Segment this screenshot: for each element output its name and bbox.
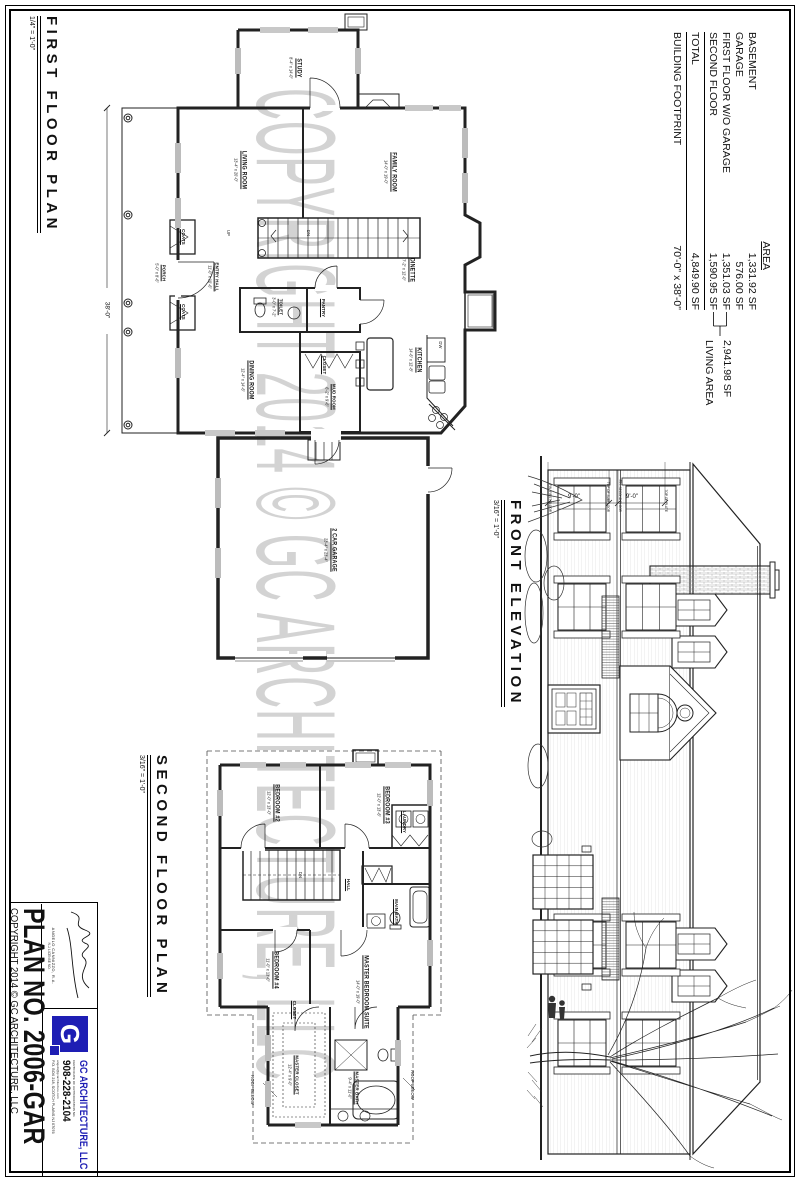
room-label-garage: 2 CAR GARAGE23'-4" x 23'-4" [324,528,337,572]
room-label-laundry: LAUNDRY [400,811,406,833]
plan-number: PLAN NO. 2006-GAR [18,908,48,1145]
second-floor-scale: 3/16" = 1'-0" [138,755,145,997]
architect-signature [61,906,97,1006]
footprint-value: 70'-0" x 38'-0" [672,212,684,310]
gc-logo-notch [49,1045,60,1056]
total-label: TOTAL [690,32,702,212]
living-area-label: LIVING AREA [700,340,718,405]
plan-dimension: 38'-0" [104,300,111,321]
living-area-value: 2,941.98 SF [718,340,736,405]
copyright-line: COPYRIGHT 2014 © GC ARCHITECTURE, LLC [8,908,19,1114]
annotation: ROOF BELOW [409,1070,415,1100]
room-dims: 11'-0" x 10'-6" [207,263,212,292]
room-name: HALL [344,879,350,891]
room-name: MUD ROOM [330,384,336,410]
room-label-bedroom-4: BEDROOM #411'-0" x 13'-0" [266,951,279,989]
room-dims: 14'-6" x 12'-8" [409,347,414,372]
level-label: TOP OF SUBFLOOR [606,482,610,512]
second-floor-title: SECOND FLOOR PLAN [147,755,170,997]
room-name: PORCH [160,263,166,282]
row-label: FIRST FLOOR W/O GARAGE [721,32,733,212]
stair-direction: DN [297,872,303,878]
label-roof-below-2: ROOF BELOW [409,1070,415,1100]
room-name: LIVING ROOM [239,151,247,189]
room-label-master-bath: MASTER BATH9'-4" x 11'-0" [347,1071,358,1104]
label-roof-below-1: ROOF BELOW [249,1075,255,1105]
room-label-coats-1: COATS [179,229,185,245]
front-elevation-title: FRONT ELEVATION [501,500,524,707]
room-name: MASTER BATH [353,1071,359,1104]
front-elevation-title-group: FRONT ELEVATION 3/16" = 1'-0" [492,500,524,707]
annotation: ROOF BELOW [249,1075,255,1105]
table-row: SECOND FLOOR 1,590.95 SF [707,32,720,310]
row-label: BASEMENT [747,32,759,212]
table-rule [686,32,687,310]
area-table-header: AREA [759,32,772,310]
stair-direction: UP [225,230,231,236]
room-label-dinette: DINETTE7'-2" x 12'-0" [402,258,415,282]
living-area-bracket [700,312,730,338]
table-footprint-row: BUILDING FOOTPRINT 70'-0" x 38'-0" [671,32,684,310]
room-label-study: STUDY8'-4" x 14'-0" [289,57,302,79]
room-name: COATS [179,229,185,245]
room-label-master-bedroom: MASTER BEDROOM SUITE14'-0" x 19'-0" [356,955,369,1029]
firm-address: P.O. BOX 218, SCOTCH PLAINS NJ 07076 [51,1060,55,1182]
room-label-toilet: TOILET3'-0" x 7'-2" [271,297,282,316]
firm-name: GC ARCHITECTURE, LLC [77,1060,89,1169]
row-label: SECOND FLOOR [708,32,720,212]
firm-block: G GC ARCHITECTURE, LLC CERTIFICATE OF AU… [42,1010,97,1176]
elevation-dim-1: 9'-0" [626,494,638,500]
label-stairs-up: UP [225,230,231,236]
room-dims: 3'-0" x 7'-2" [271,297,276,316]
room-label-mud-room: MUD ROOM6'-2" x 9'-6" [324,384,335,410]
plan-sheet: COPYRIGHT 2014 © GC ARCHITECTURE, LLC [0,0,800,1182]
architect-name: ANGELO CANNIZZO, R.A. [51,904,56,1008]
front-elevation-scale: 3/16" = 1'-0" [492,500,499,707]
room-name: ENTRY HALL [213,263,219,292]
room-name: TOILET [277,297,283,316]
room-label-porch: PORCH5'-0" x 8'-6" [154,263,165,282]
room-label-family-room: FAMILY ROOM14'-0" x 19'-0" [384,152,397,191]
row-label: GARAGE [734,32,746,212]
label-stairs-dn-2: DN [297,872,303,878]
footprint-label: BUILDING FOOTPRINT [672,32,684,212]
room-name: MAIN BATH [392,899,398,925]
room-dims: 5'-0" x 8'-6" [154,263,159,282]
room-name: 2 CAR GARAGE [329,528,337,572]
area-table: AREA BASEMENT 1,331.92 SF GARAGE 576.00 … [671,32,772,310]
room-label-closet-2: CLOSET [290,1001,296,1020]
fixture-name: DW [437,341,443,348]
room-name: BEDROOM #2 [272,784,280,822]
room-dims: 8'-4" x 14'-0" [289,57,294,79]
first-floor-title-group: FIRST FLOOR PLAN 1/4" = 1'-0" [28,16,60,233]
room-label-entry-hall: ENTRY HALL11'-0" x 10'-6" [207,263,218,292]
level-label: FIN. FIRST FLOOR [548,484,552,512]
room-name: DINING ROOM [246,360,254,399]
room-label-bedroom-2: BEDROOM #212'-0" x 13'-0" [267,784,280,822]
firm-certificate: CERTIFICATE OF AUTHORIZATION NO. [72,1060,76,1182]
table-row: GARAGE 576.00 SF [733,32,746,310]
room-name: FAMILY ROOM [389,152,397,191]
room-name: KITCHEN [414,347,422,372]
room-name: BEDROOM #4 [271,951,279,989]
room-label-living-room: LIVING ROOM13'-4" x 20'-0" [234,151,247,189]
label-dishwasher: DW [437,341,443,348]
room-name: DINETTE [407,258,415,282]
firm-phone: 908-228-2104 [60,1060,72,1180]
stair-direction: DN [305,230,311,236]
elevation-dim-2: 9'-0" [568,494,580,500]
table-row: BASEMENT 1,331.92 SF [746,32,759,310]
room-label-hall: HALL [344,879,350,891]
room-label-main-bath: MAIN BATH [392,899,398,925]
room-name: PANTRY [319,299,325,317]
row-value: 1,331.92 SF [747,212,759,310]
gc-logo-letter: G [55,1024,86,1044]
gc-logo: G [52,1016,88,1052]
table-total-row: TOTAL 4,849.90 SF [689,32,702,310]
text-layer: FIRST FLOOR PLAN 1/4" = 1'-0" FRONT ELEV… [0,0,800,1182]
room-name: CLOSET [290,1001,296,1020]
living-area-callout: 2,941.98 SF LIVING AREA [700,340,736,405]
row-value: 576.00 SF [734,212,746,310]
table-rule [704,32,705,310]
room-name: BEDROOM #3 [382,786,390,824]
first-floor-scale: 1/4" = 1'-0" [28,16,35,233]
second-floor-title-group: SECOND FLOOR PLAN 3/16" = 1'-0" [138,755,170,997]
room-label-closet: CLOSET [320,356,326,375]
room-label-dining-room: DINING ROOM12'-4" x 14'-6" [241,360,254,399]
room-name: LAUNDRY [400,811,406,833]
room-name: STUDY [294,57,302,79]
room-label-coats-2: COATS [179,304,185,320]
title-block-border-left [10,902,98,903]
room-name: MASTER CLOSET [293,1055,299,1094]
room-label-master-closet: MASTER CLOSET12'-4" x 9'-0" [287,1055,298,1094]
total-value: 4,849.90 SF [690,212,702,310]
row-value: 1,351.03 SF [721,212,733,310]
label-stairs-dn: DN [305,230,311,236]
room-label-pantry: PANTRY [319,299,325,317]
row-value: 1,590.95 SF [708,212,720,310]
level-label: FIN. SECOND FLOOR [618,480,622,512]
level-label: TOP OF PLATE [664,490,668,513]
room-dims: 6'-2" x 9'-6" [324,384,329,410]
room-label-kitchen: KITCHEN14'-6" x 12'-8" [409,347,422,372]
first-floor-title: FIRST FLOOR PLAN [37,16,60,233]
table-row: FIRST FLOOR W/O GARAGE 1,351.03 SF [720,32,733,310]
room-name: MASTER BEDROOM SUITE [361,955,369,1029]
room-dims: 7'-2" x 12'-0" [402,258,407,282]
room-name: CLOSET [320,356,326,375]
room-label-bedroom-3: BEDROOM #312'-0" x 13'-6" [377,786,390,824]
title-block-border-top [97,902,98,1176]
room-name: COATS [179,304,185,320]
